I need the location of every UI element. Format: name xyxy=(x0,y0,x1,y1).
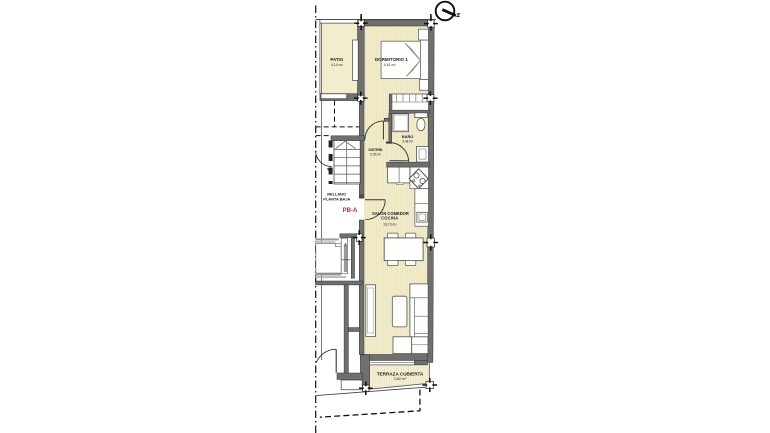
svg-text:PB-A: PB-A xyxy=(343,208,358,214)
svg-text:DISTRIB.: DISTRIB. xyxy=(368,148,383,152)
svg-text:TERRAZA CUBIERTA: TERRAZA CUBIERTA xyxy=(377,372,424,377)
svg-text:DORMITORIO 1: DORMITORIO 1 xyxy=(375,57,408,62)
svg-text:BAÑO: BAÑO xyxy=(402,134,413,139)
svg-text:PATIO: PATIO xyxy=(330,57,343,62)
svg-text:4,14 m²: 4,14 m² xyxy=(331,63,344,67)
svg-text:COCINA: COCINA xyxy=(381,216,398,221)
svg-text:2,82 m²: 2,82 m² xyxy=(394,377,407,381)
svg-text:3,48 m²: 3,48 m² xyxy=(402,140,413,144)
svg-text:9,41 m²: 9,41 m² xyxy=(384,63,397,67)
svg-text:0,95 m²: 0,95 m² xyxy=(370,153,381,157)
svg-text:PLANTA BAJA: PLANTA BAJA xyxy=(323,197,350,202)
svg-text:19,73 m²: 19,73 m² xyxy=(383,223,397,227)
